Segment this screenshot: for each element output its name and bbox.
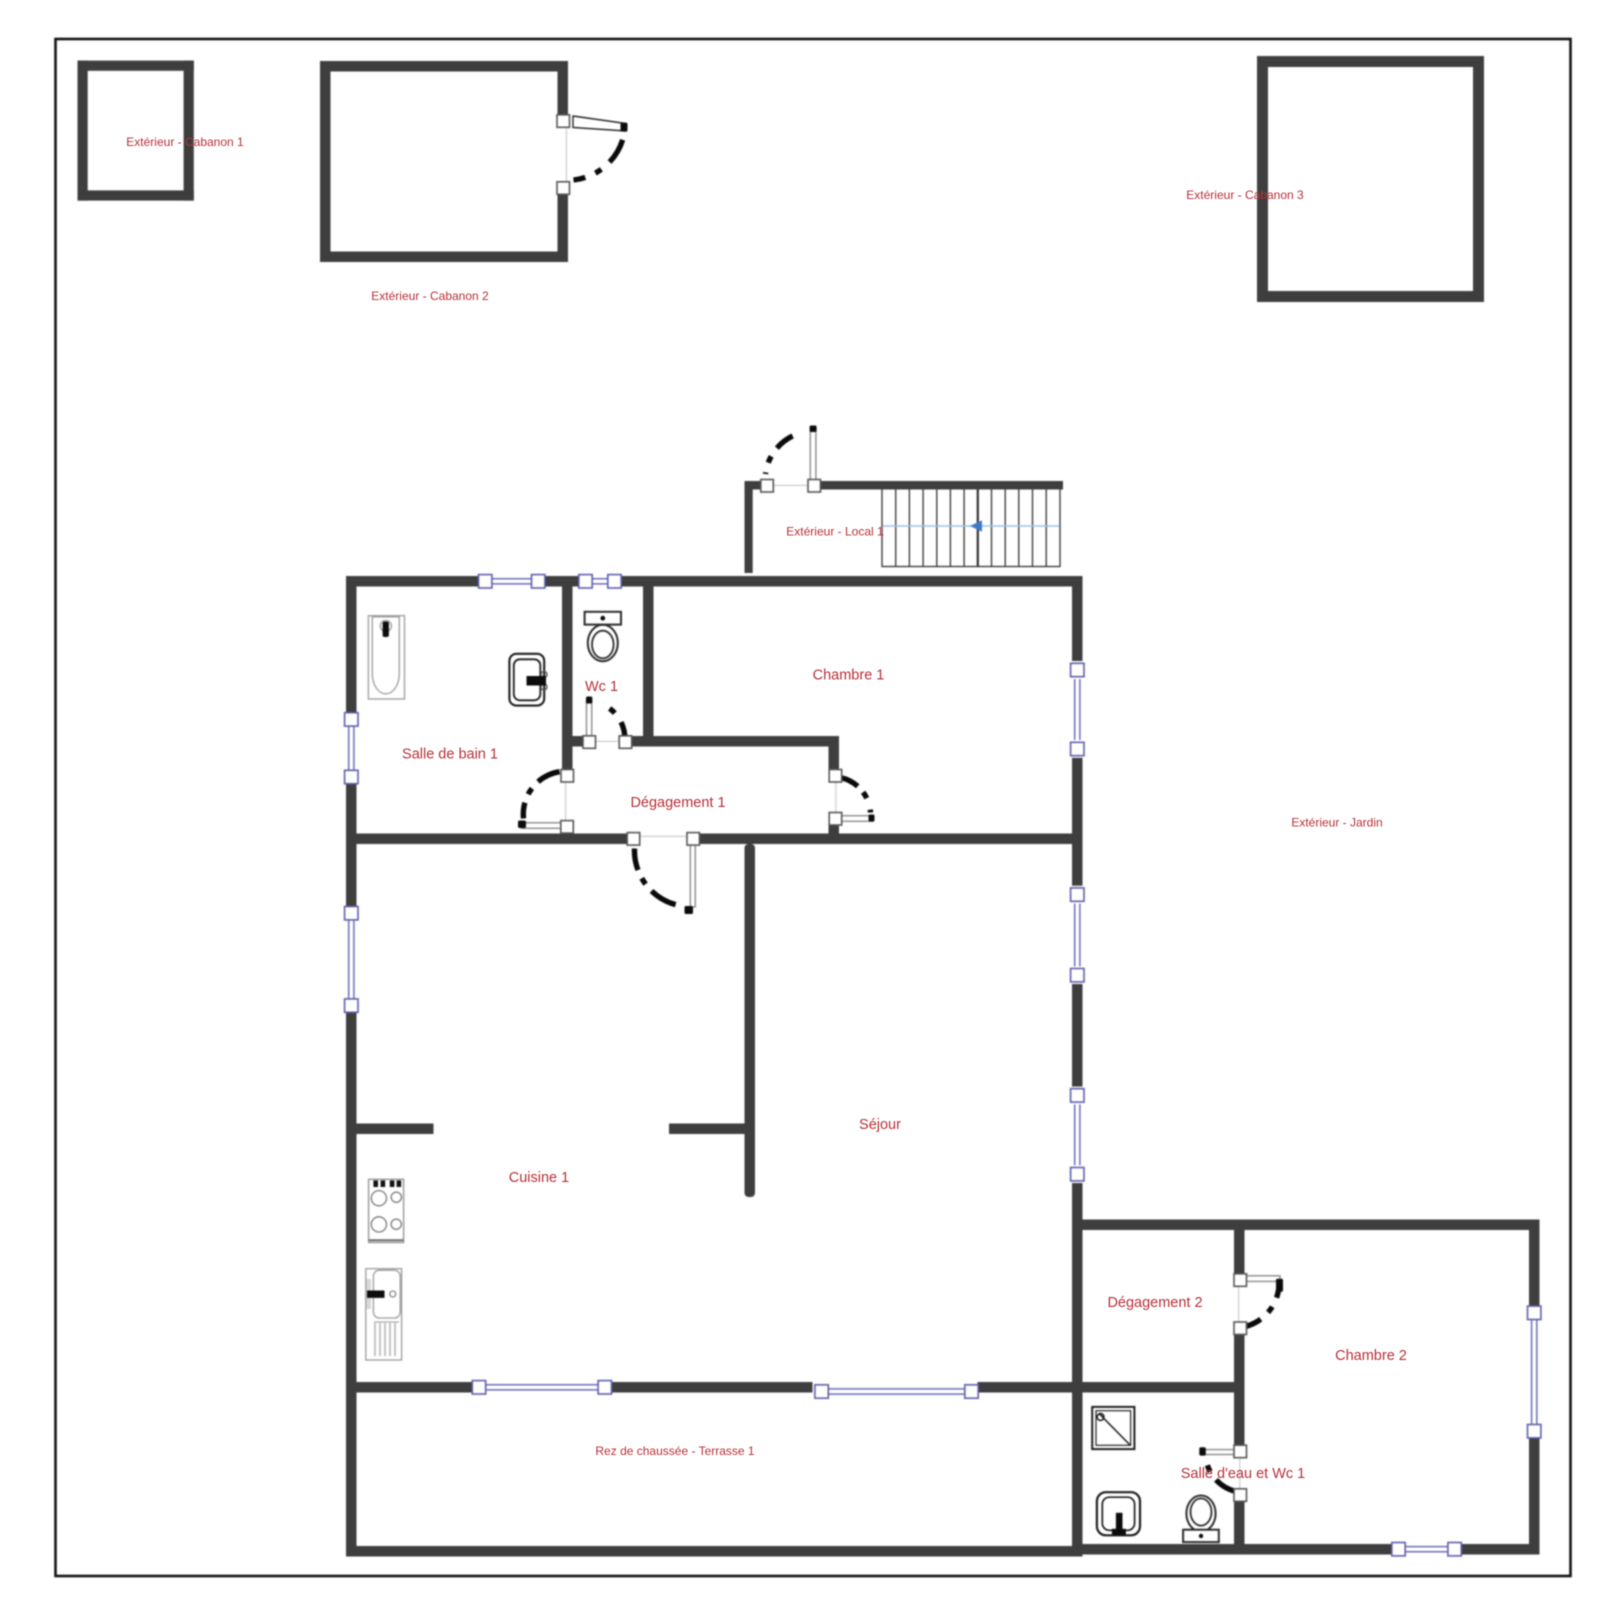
svg-text:Salle d'eau et Wc 1: Salle d'eau et Wc 1 xyxy=(1181,1466,1305,1482)
svg-text:Wc 1: Wc 1 xyxy=(585,679,618,695)
svg-text:Extérieur - Jardin: Extérieur - Jardin xyxy=(1291,816,1382,830)
svg-text:Extérieur - Cabanon 3: Extérieur - Cabanon 3 xyxy=(1186,188,1304,202)
svg-text:Cuisine 1: Cuisine 1 xyxy=(509,1170,569,1186)
svg-text:Extérieur - Cabanon 1: Extérieur - Cabanon 1 xyxy=(126,135,244,149)
svg-text:Extérieur - Local 1: Extérieur - Local 1 xyxy=(786,525,884,539)
svg-text:Dégagement 1: Dégagement 1 xyxy=(630,795,725,811)
svg-text:Chambre 2: Chambre 2 xyxy=(1335,1348,1407,1364)
svg-text:Dégagement 2: Dégagement 2 xyxy=(1107,1295,1202,1311)
svg-text:Extérieur - Cabanon 2: Extérieur - Cabanon 2 xyxy=(371,289,489,303)
svg-text:Chambre 1: Chambre 1 xyxy=(813,668,885,684)
svg-text:Séjour: Séjour xyxy=(859,1117,901,1133)
svg-text:Salle de bain 1: Salle de bain 1 xyxy=(402,747,498,763)
svg-text:Rez de chaussée - Terrasse 1: Rez de chaussée - Terrasse 1 xyxy=(595,1444,755,1458)
